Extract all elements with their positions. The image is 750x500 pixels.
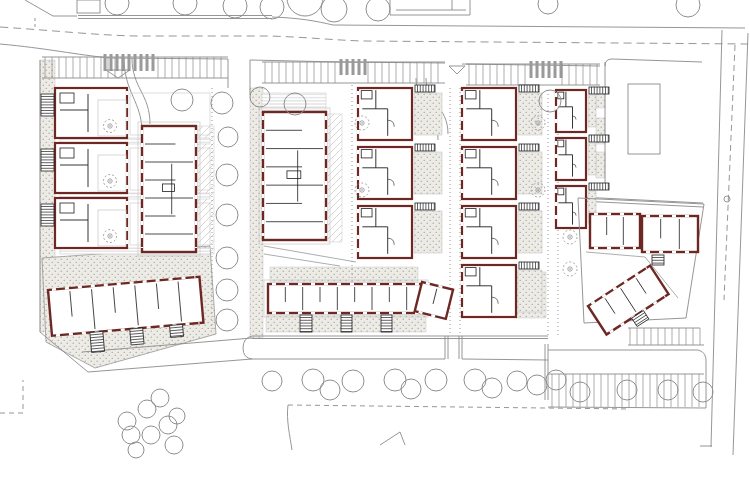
tree-circle — [216, 247, 238, 269]
courtyard-tree-dot — [537, 122, 539, 124]
tree-circle — [507, 371, 527, 391]
crosswalk-bar — [140, 54, 143, 71]
stair — [415, 85, 435, 92]
stair — [519, 203, 539, 210]
plan-path — [25, 0, 77, 16]
tree-circle — [287, 0, 323, 16]
house-unit — [462, 88, 516, 140]
tree-circle — [159, 416, 177, 434]
house-unit — [358, 147, 412, 199]
tree-circle — [216, 309, 238, 331]
courtyard-tree-dot — [569, 236, 571, 238]
tree-circle — [105, 0, 129, 15]
plan-path — [264, 246, 356, 262]
crosswalk-bar — [152, 54, 155, 71]
tree-circle — [169, 408, 185, 424]
inner-patio — [98, 155, 126, 191]
tree-circle — [142, 426, 160, 444]
stair — [589, 87, 609, 94]
crosswalk-bar — [530, 61, 533, 78]
court-patio — [414, 211, 442, 253]
crosswalk-bar — [346, 59, 349, 75]
plan-path — [380, 432, 405, 445]
tree-circle — [151, 389, 169, 407]
apartment-slab — [268, 284, 424, 313]
plan-path — [390, 0, 470, 15]
tree-circle — [384, 369, 406, 391]
tree-circle — [342, 370, 364, 392]
plan-rect — [77, 0, 100, 13]
house-unit — [462, 206, 516, 258]
plan-path — [0, 380, 23, 413]
tree-circle — [171, 89, 193, 111]
crosswalk-bar — [542, 61, 545, 78]
plan-path — [548, 350, 706, 363]
stair — [519, 144, 539, 151]
inner-patio — [98, 100, 126, 136]
plan-rect — [628, 84, 660, 154]
tree-circle — [262, 371, 282, 391]
crosswalk-bar — [548, 61, 551, 78]
tree-circle — [173, 0, 197, 15]
house-unit — [556, 186, 586, 228]
courtyard-tree-dot — [109, 125, 111, 127]
crosswalk-bar — [364, 59, 367, 75]
rotated-block — [415, 282, 453, 319]
apartment-slab — [590, 214, 640, 248]
plan-path — [287, 405, 292, 450]
tree-circle — [321, 0, 347, 22]
tree-circle — [482, 378, 502, 398]
ramp-arrow — [449, 66, 465, 74]
tree-circle — [546, 370, 566, 390]
tree-circle — [658, 380, 678, 400]
plan-line — [711, 30, 722, 447]
house-unit — [556, 138, 586, 180]
tree-circle — [401, 379, 421, 399]
courtyard-tree-dot — [109, 180, 111, 182]
inner-patio — [98, 210, 126, 246]
plan-path — [264, 254, 340, 266]
crosswalk-bar — [146, 54, 149, 71]
tree-circle — [260, 0, 284, 19]
plan-path — [0, 27, 748, 44]
plan-line — [548, 407, 706, 408]
court-patio — [414, 152, 442, 194]
stair — [589, 183, 609, 190]
crosswalk-bar — [122, 54, 125, 71]
apartment-slab — [642, 216, 698, 252]
stair — [589, 135, 609, 142]
court-patio — [518, 270, 542, 312]
tree-circle — [216, 164, 238, 186]
crosswalk-bar — [340, 59, 343, 75]
stair — [415, 203, 435, 210]
gravel-area — [596, 152, 605, 178]
crosswalk-bar — [128, 54, 131, 71]
plan-line — [733, 33, 748, 455]
tree-circle — [464, 369, 486, 391]
site-plan-svg — [0, 0, 750, 500]
crosswalk-bar — [134, 54, 137, 71]
house-unit — [462, 147, 516, 199]
courtyard-tree-dot — [361, 122, 363, 124]
tree-circle — [527, 375, 547, 395]
site-plan-drawing — [0, 0, 750, 500]
tree-circle — [128, 442, 144, 458]
tree-circle — [425, 369, 447, 391]
tree-circle — [617, 380, 637, 400]
tree-circle — [366, 0, 390, 21]
crosswalk-bar — [358, 59, 361, 75]
tree-circle — [165, 436, 183, 454]
house-unit — [358, 206, 412, 258]
crosswalk-bar — [104, 54, 107, 71]
crosswalk-bar — [110, 54, 113, 71]
tree-circle — [676, 0, 700, 17]
crosswalk-bar — [554, 61, 557, 78]
plan-line — [462, 359, 548, 360]
courtyard-tree-dot — [569, 268, 571, 270]
stair — [519, 262, 539, 269]
plan-path — [724, 45, 735, 300]
apartment-slab — [263, 112, 326, 240]
crosswalk-bar — [536, 61, 539, 78]
tree-circle — [211, 92, 233, 114]
court-patio — [414, 93, 442, 135]
courtyard-tree-dot — [109, 235, 111, 237]
stair — [415, 144, 435, 151]
court-patio — [588, 95, 596, 127]
house-unit — [462, 265, 516, 317]
house-unit — [358, 88, 412, 140]
plan-path — [243, 336, 252, 359]
tree-circle — [693, 382, 713, 402]
tree-circle — [138, 400, 156, 418]
tree-circle — [216, 279, 238, 301]
plan-path — [605, 59, 702, 66]
tree-circle — [218, 127, 238, 147]
house-unit — [556, 90, 586, 132]
crosswalk-bar — [116, 54, 119, 71]
courtyard-tree-dot — [361, 189, 363, 191]
courtyard-tree-dot — [537, 189, 539, 191]
court-patio — [588, 143, 596, 175]
stair — [519, 85, 539, 92]
gravel-area — [250, 88, 263, 338]
tree-circle — [320, 380, 340, 400]
court-patio — [518, 211, 542, 253]
court-patio — [518, 93, 542, 135]
gravel-area — [596, 92, 605, 108]
tree-circle — [216, 204, 238, 226]
tree-circle — [538, 0, 558, 14]
plan-circle — [724, 196, 730, 202]
apartment-slab — [142, 126, 196, 252]
crosswalk-bar — [352, 59, 355, 75]
